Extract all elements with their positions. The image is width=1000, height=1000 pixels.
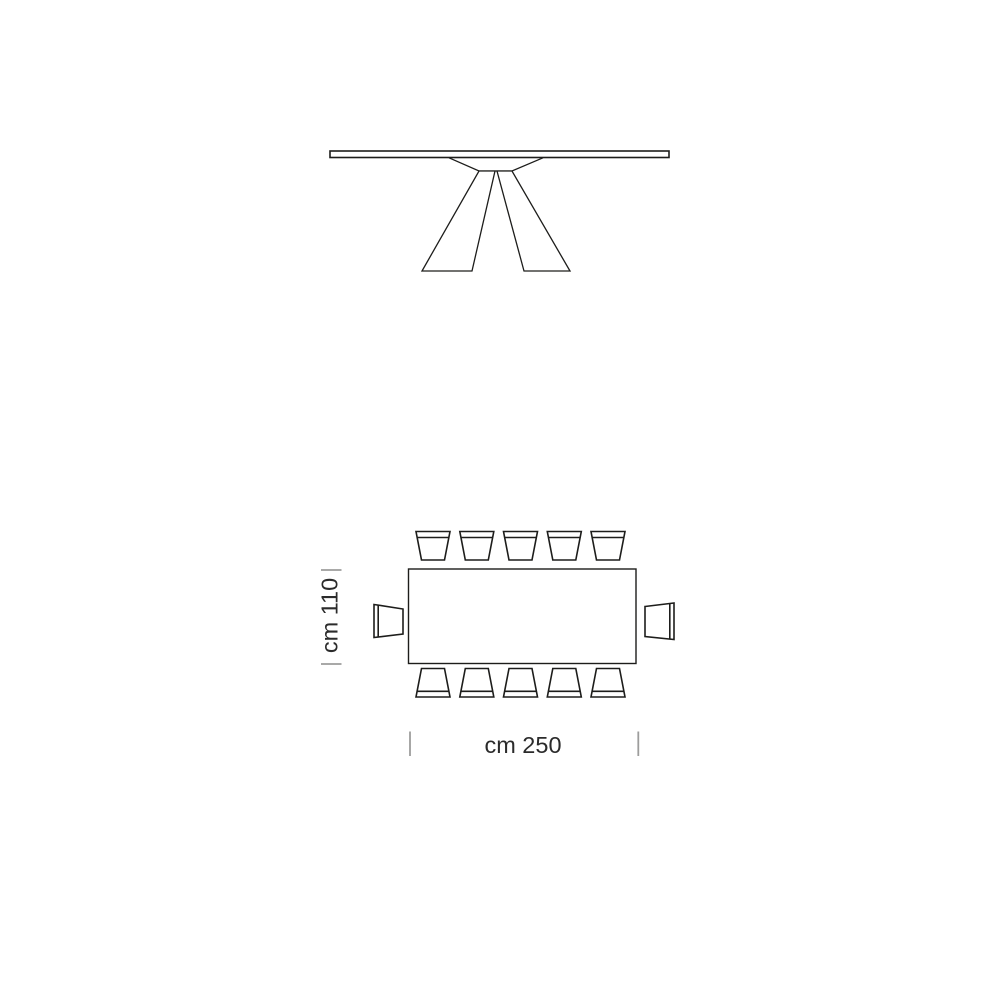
- table-plan-view: [374, 532, 674, 698]
- chair-bottom-2: [460, 669, 494, 698]
- diagram-canvas: cm 110 cm 250: [0, 0, 1000, 1000]
- chair-top-5: [591, 532, 625, 561]
- chairs-top-row: [416, 532, 625, 561]
- pedestal-mount: [449, 158, 543, 171]
- chair-left-end: [374, 605, 403, 638]
- chair-top-2: [460, 532, 494, 561]
- table-dimension-drawing: cm 110 cm 250: [0, 0, 1000, 1000]
- chair-bottom-4: [547, 669, 581, 698]
- chair-top-4: [547, 532, 581, 561]
- chair-right-end: [645, 603, 674, 640]
- table-front-elevation: [330, 151, 669, 271]
- chairs-bottom-row: [416, 669, 625, 698]
- chair-bottom-3: [504, 669, 538, 698]
- dimension-width-label: cm 250: [484, 732, 561, 758]
- table-leg-left: [422, 171, 495, 271]
- chair-top-1: [416, 532, 450, 561]
- table-leg-right: [497, 171, 570, 271]
- chair-bottom-5: [591, 669, 625, 698]
- dimension-depth-label: cm 110: [317, 578, 343, 653]
- chair-top-3: [504, 532, 538, 561]
- tabletop-plan: [409, 569, 637, 664]
- chair-bottom-1: [416, 669, 450, 698]
- tabletop-side-profile: [330, 151, 669, 158]
- dimension-depth: cm 110: [317, 570, 343, 664]
- dimension-width: cm 250: [410, 732, 638, 759]
